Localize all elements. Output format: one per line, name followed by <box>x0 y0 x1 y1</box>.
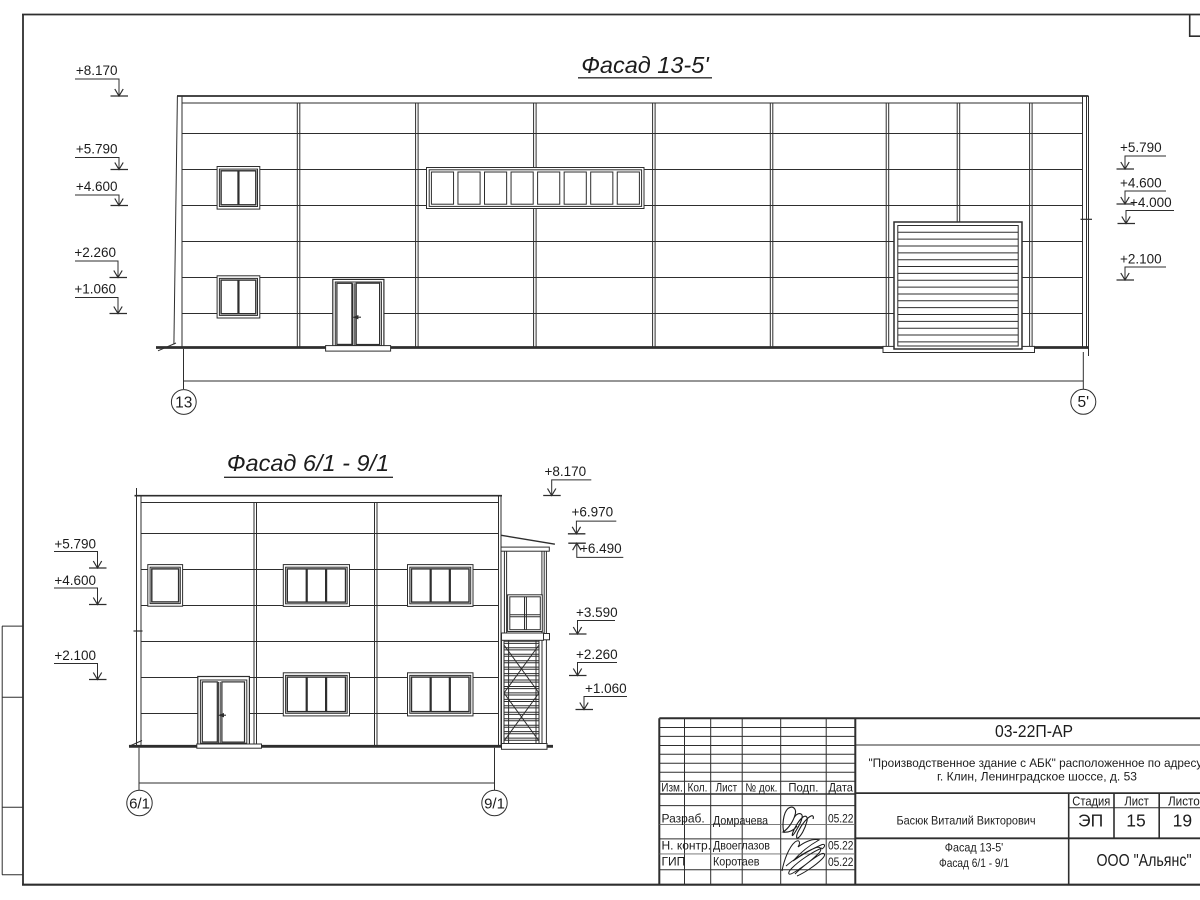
svg-text:Лист: Лист <box>1124 794 1149 808</box>
svg-text:+6.970: +6.970 <box>572 505 614 520</box>
svg-text:г. Клин, Ленинградское шоссе,: г. Клин, Ленинградское шоссе, д. 53 <box>937 770 1137 784</box>
svg-text:Листов: Листов <box>1168 794 1200 808</box>
svg-text:+4.600: +4.600 <box>54 573 96 588</box>
svg-text:ООО "Альянс": ООО "Альянс" <box>1097 850 1192 870</box>
svg-text:+3.590: +3.590 <box>576 605 618 620</box>
svg-text:+1.060: +1.060 <box>585 681 627 696</box>
svg-text:Двоеглазов: Двоеглазов <box>713 839 770 853</box>
svg-text:ЭП: ЭП <box>1078 811 1103 831</box>
svg-text:+4.600: +4.600 <box>76 179 118 194</box>
svg-text:6/1: 6/1 <box>129 795 150 812</box>
svg-text:19: 19 <box>1173 811 1192 831</box>
svg-text:+5.790: +5.790 <box>76 141 118 156</box>
svg-text:+2.260: +2.260 <box>576 647 618 662</box>
svg-text:Подп.: Подп. <box>788 781 818 795</box>
svg-text:Басюк Виталий Викторович: Басюк Виталий Викторович <box>897 814 1036 828</box>
svg-text:9/1: 9/1 <box>484 795 505 812</box>
svg-text:Н. контр.: Н. контр. <box>662 839 712 853</box>
svg-text:05.22: 05.22 <box>828 855 854 869</box>
svg-text:Разраб.: Разраб. <box>662 812 705 826</box>
svg-text:+1.060: +1.060 <box>74 282 116 297</box>
svg-text:+4.600: +4.600 <box>1120 176 1162 191</box>
svg-text:Фасад 13-5': Фасад 13-5' <box>945 841 1004 855</box>
svg-text:13: 13 <box>175 394 192 411</box>
svg-text:Коротаев: Коротаев <box>713 855 760 869</box>
svg-text:Изм.: Изм. <box>661 781 683 795</box>
svg-text:15: 15 <box>1126 811 1145 831</box>
svg-text:+5.790: +5.790 <box>1120 140 1162 155</box>
svg-text:Лист: Лист <box>716 781 738 795</box>
svg-text:Фасад 6/1 - 9/1: Фасад 6/1 - 9/1 <box>227 450 389 476</box>
svg-text:+4.000: +4.000 <box>1130 195 1172 210</box>
svg-text:"Производственное здание с АБК: "Производственное здание с АБК" располож… <box>869 756 1200 770</box>
svg-text:+2.100: +2.100 <box>54 648 96 663</box>
svg-text:5': 5' <box>1078 394 1090 411</box>
svg-text:+8.170: +8.170 <box>545 464 587 479</box>
svg-text:+5.790: +5.790 <box>54 536 96 551</box>
svg-text:03-22П-АР: 03-22П-АР <box>995 721 1073 741</box>
svg-text:+2.260: +2.260 <box>74 245 116 260</box>
svg-text:Фасад 6/1 - 9/1: Фасад 6/1 - 9/1 <box>939 856 1009 870</box>
svg-text:05.22: 05.22 <box>828 812 854 826</box>
svg-text:Домрачева: Домрачева <box>713 814 768 828</box>
svg-text:ГИП: ГИП <box>662 855 686 869</box>
svg-text:+6.490: +6.490 <box>580 541 622 556</box>
svg-text:+2.100: +2.100 <box>1120 251 1162 266</box>
svg-text:Стадия: Стадия <box>1072 794 1110 808</box>
svg-text:Фасад 13-5': Фасад 13-5' <box>581 52 710 78</box>
svg-text:Дата: Дата <box>828 781 853 795</box>
svg-text:№ док.: № док. <box>745 781 777 795</box>
svg-text:Кол.: Кол. <box>688 781 708 795</box>
svg-text:05.22: 05.22 <box>828 839 854 853</box>
svg-text:+8.170: +8.170 <box>76 63 118 78</box>
